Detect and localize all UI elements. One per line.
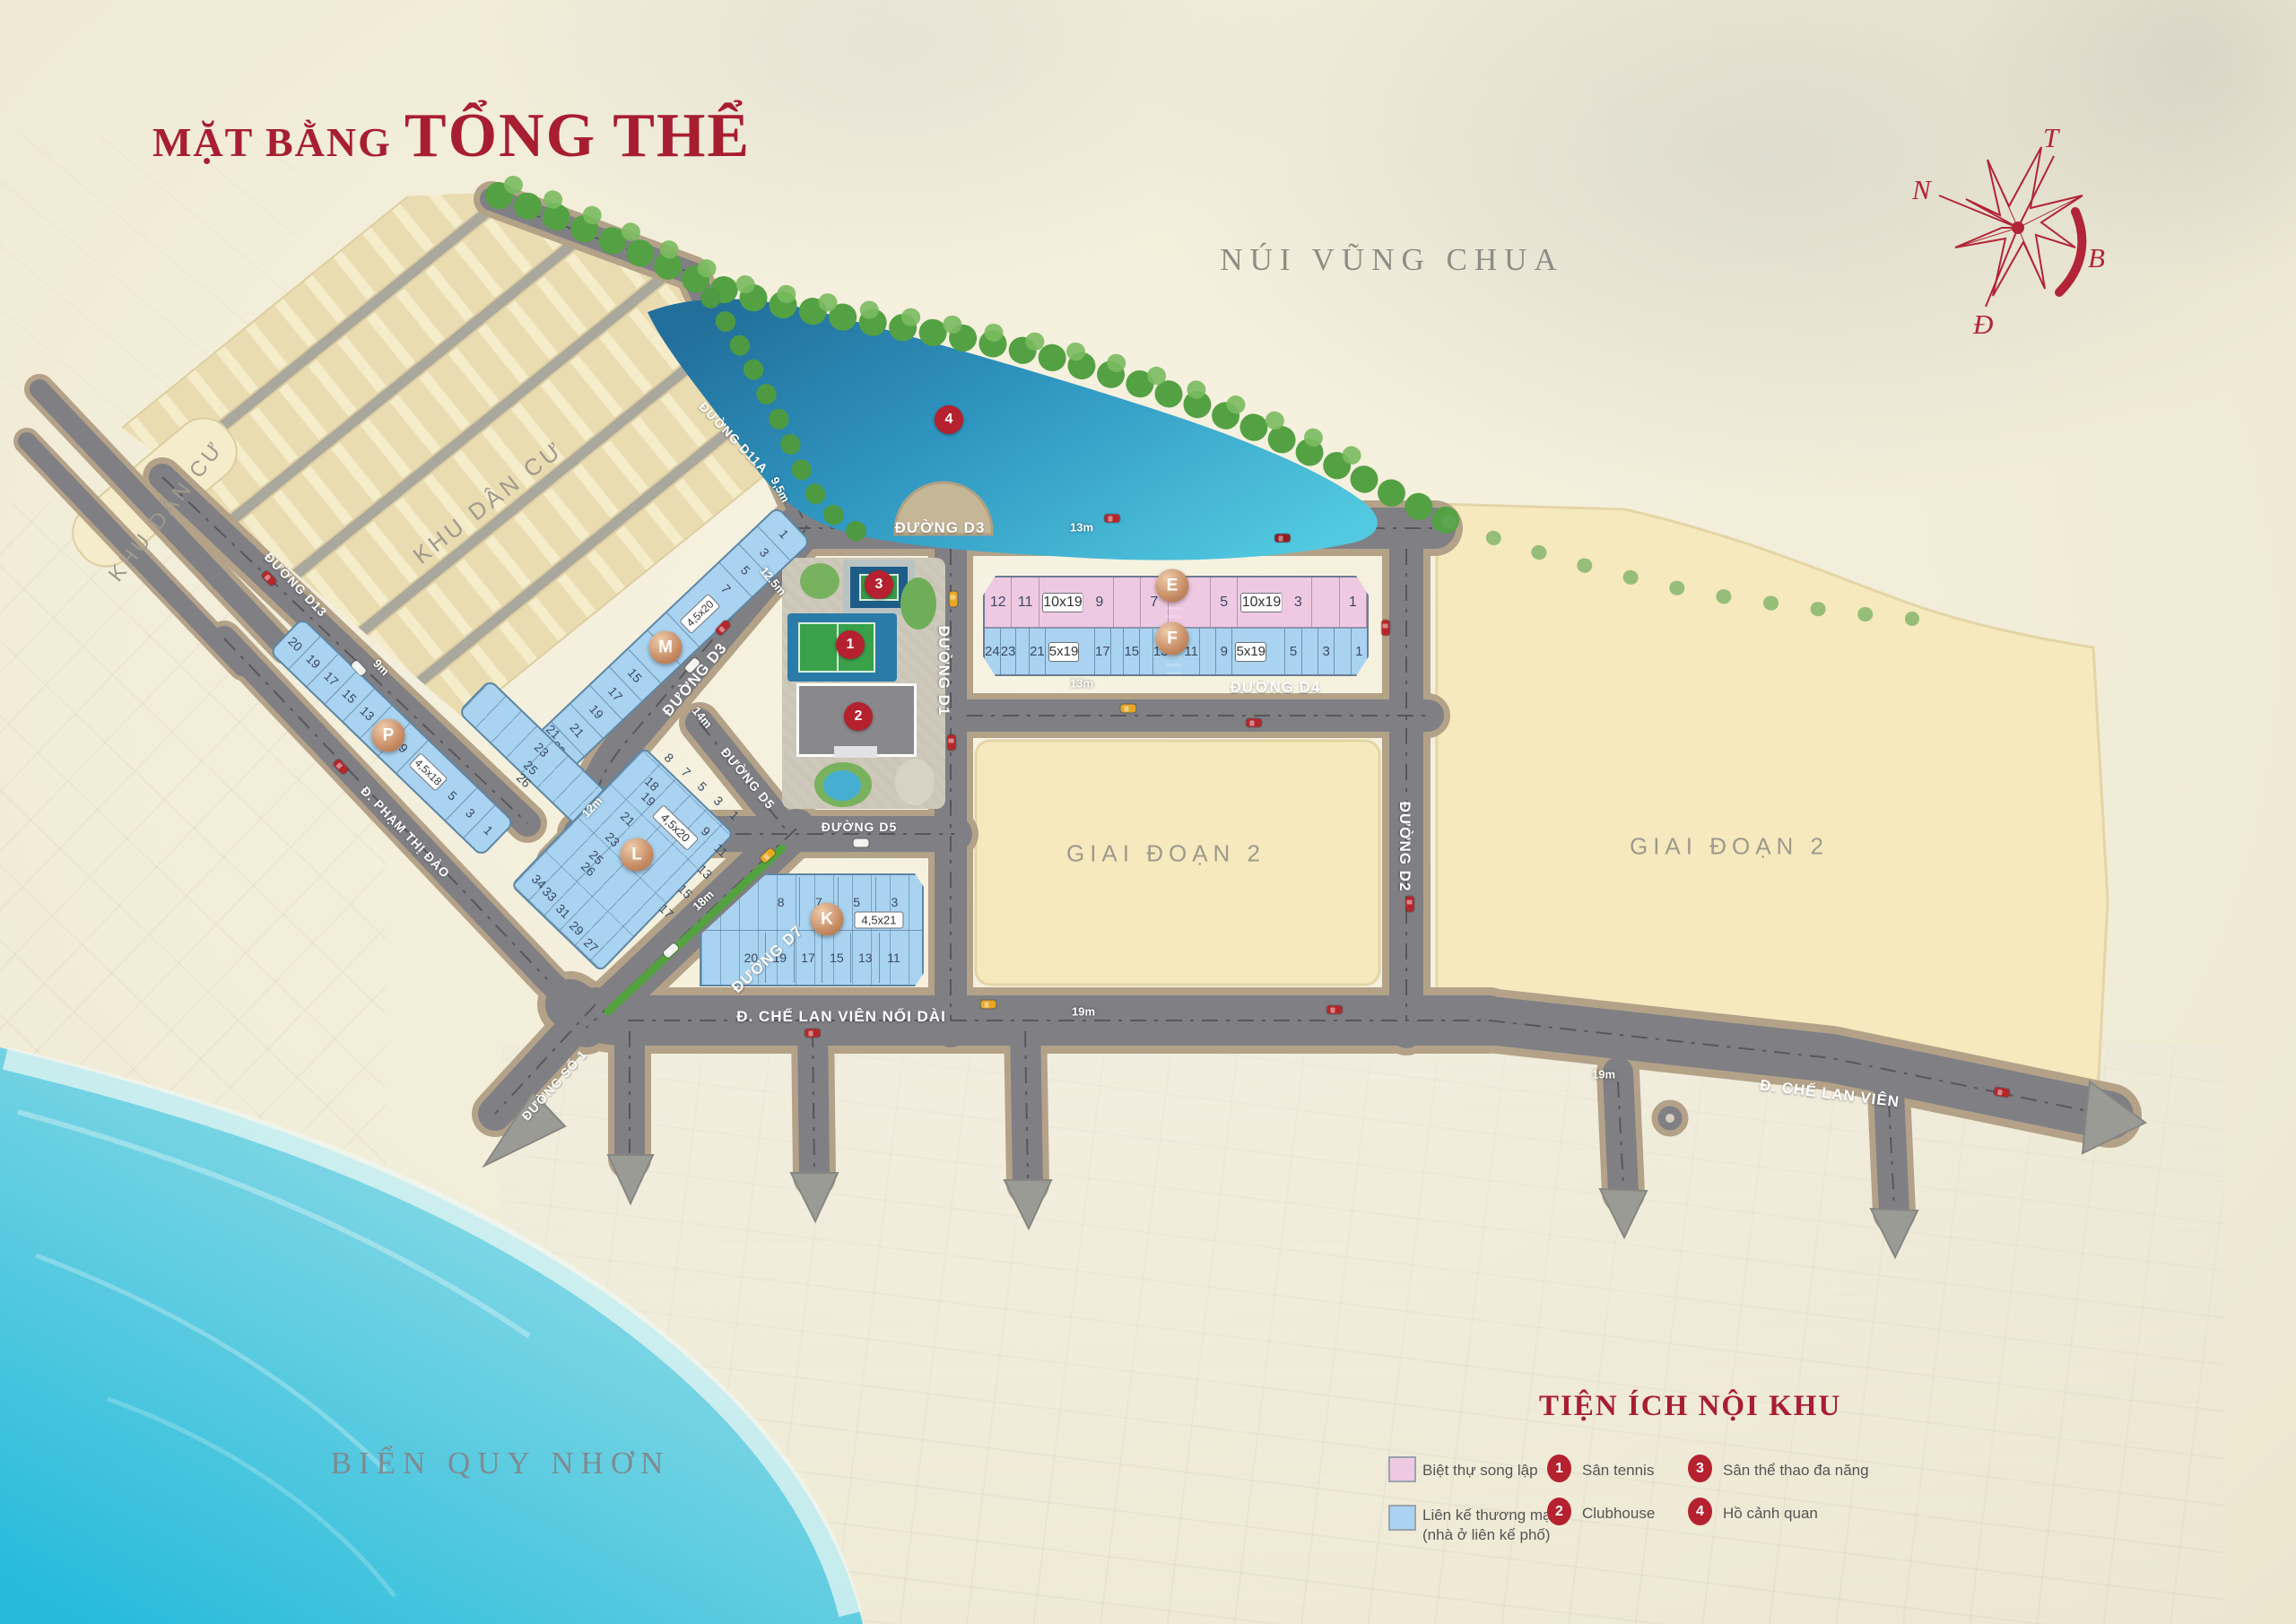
lot-number: 11 (1012, 578, 1039, 627)
compass-rose: T N B Đ (1900, 106, 2133, 348)
tennis-court (798, 622, 875, 673)
compass-D: Đ (1972, 308, 1993, 340)
legend-item-2-label: Clubhouse (1582, 1505, 1655, 1523)
title-main: TỔNG THỂ (404, 101, 751, 170)
lot-number: 11 (880, 933, 908, 983)
lot-cell (1140, 629, 1153, 674)
clubhouse-entrance (834, 746, 877, 758)
lot-size-label: 4,5x20 (679, 593, 720, 633)
lot-size-label: 5x19 (1048, 642, 1080, 662)
legend-item-3-label: Sân thể thao đa năng (1723, 1462, 1869, 1480)
lot-number: 5 (1211, 578, 1238, 627)
legend-swatch-twin-villa (1388, 1456, 1416, 1482)
lot-size-label: 5x19 (1235, 642, 1266, 662)
legend-title: TIỆN ÍCH NỘI KHU (1539, 1390, 1841, 1423)
lot-cell (1184, 578, 1211, 627)
legend-item-2-badge: 2 (1547, 1498, 1571, 1525)
title-prefix: MẶT BẰNG (152, 119, 392, 165)
compass-N: N (1911, 174, 1933, 205)
lot-number: 15 (1124, 629, 1140, 674)
lot-size-label: 10x19 (1042, 593, 1083, 612)
legend-item-1-label: Sân tennis (1582, 1462, 1654, 1480)
legend-label-shophouse: Liên kế thương mại (1422, 1507, 1554, 1524)
block-K-bottom-row: 201917151311 (737, 933, 908, 983)
lot-number: 17 (1095, 629, 1111, 674)
lot-cell (1111, 629, 1125, 674)
legend-label-shophouse-2: (nhà ở liên kế phố) (1422, 1526, 1551, 1544)
lot-cell (1312, 578, 1339, 627)
lot-number: 17 (795, 933, 823, 983)
lot-size-label: 4,5x18 (408, 752, 448, 792)
master-plan-canvas: 121110x1997510x1931 2423215x191715131195… (0, 0, 2296, 1624)
lot-number: 3 (876, 877, 913, 927)
lot-cell (1200, 629, 1216, 674)
garden-pond (823, 770, 861, 801)
lot-cell (1269, 629, 1285, 674)
paved-path (895, 759, 935, 805)
block-EF: 121110x1997510x1931 2423215x191715131195… (983, 576, 1369, 676)
phase2-center-block (976, 741, 1379, 985)
legend: TIỆN ÍCH NỘI KHU Biệt thự song lập Liên … (1363, 1381, 2206, 1596)
lot-cell (1114, 578, 1141, 627)
lot-cell (1335, 629, 1351, 674)
legend-item-4-badge: 4 (1688, 1498, 1712, 1525)
lot-number: 3 (1285, 578, 1312, 627)
lot-number: 9 (1086, 578, 1113, 627)
grass-patch (800, 563, 839, 599)
lot-number: 9 (1216, 629, 1232, 674)
legend-item-4-label: Hồ cảnh quan (1723, 1505, 1818, 1523)
lot-number: 7 (800, 877, 838, 927)
compass-B: B (2088, 242, 2105, 274)
legend-item-3-badge: 3 (1688, 1455, 1712, 1482)
lot-number: 8 (762, 877, 800, 927)
lot-number: 3 (1318, 629, 1335, 674)
lot-number: 5 (839, 877, 876, 927)
compass-T: T (2043, 122, 2061, 153)
lot-number: 7 (1141, 578, 1168, 627)
block-K-top-row: 8753 (762, 877, 913, 927)
grass-patch (900, 578, 936, 630)
legend-label-twin-villa: Biệt thự song lập (1422, 1462, 1538, 1480)
lot-number: 20 (737, 933, 766, 983)
lot-cell (1302, 629, 1318, 674)
lot-number: 13 (851, 933, 880, 983)
lot-number: 23 (1001, 629, 1017, 674)
page-title: MẶT BẰNGTỔNG THỂ (152, 100, 751, 172)
amenity-area (782, 558, 945, 809)
lot-cell (1016, 629, 1030, 674)
lot-number: 11 (1184, 629, 1200, 674)
lot-number: 5 (1285, 629, 1301, 674)
landscape-lake (648, 299, 1378, 560)
green-median (1166, 578, 1181, 674)
multi-sport-court-field (859, 574, 899, 601)
lot-cell (1082, 629, 1095, 674)
lot-number: 19 (766, 933, 795, 983)
legend-swatch-shophouse (1388, 1505, 1416, 1531)
lot-number: 21 (1030, 629, 1046, 674)
lot-size-label: 10x19 (1240, 593, 1282, 612)
lot-number: 15 (822, 933, 851, 983)
legend-item-1-badge: 1 (1547, 1455, 1571, 1482)
